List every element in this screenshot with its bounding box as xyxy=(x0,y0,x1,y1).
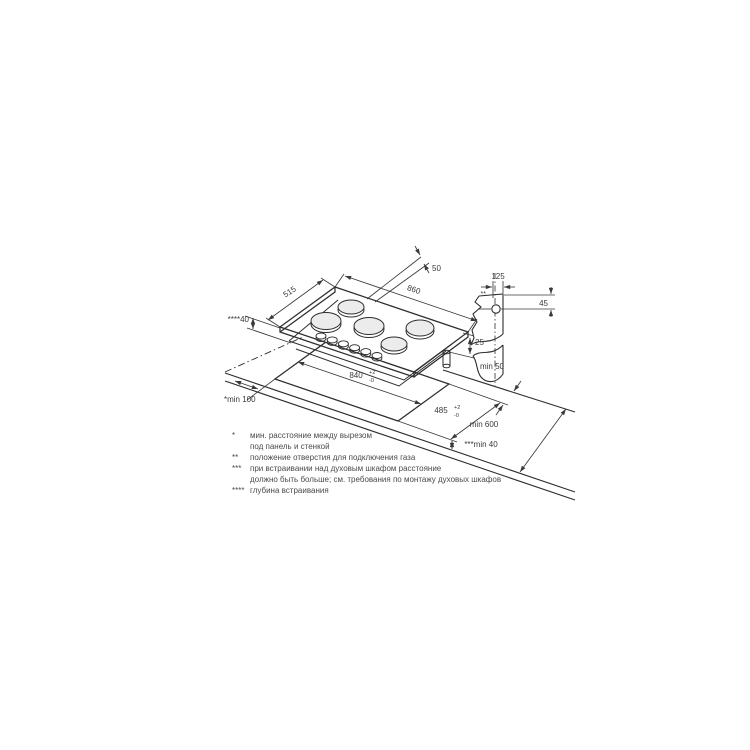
worktop-back-edge xyxy=(443,370,575,412)
installation-diagram: 50 860 515 ****40 25 125 ** 45 840 +2 -0… xyxy=(0,0,750,750)
label-front-clearance: ***min 40 xyxy=(464,440,498,449)
label-gas-offset: 50 xyxy=(432,264,441,273)
footnote-text: должно быть больше; см. требования по мо… xyxy=(250,475,501,484)
detail-panel-upper xyxy=(479,294,503,334)
dim-back-clearance xyxy=(496,381,521,415)
label-worktop-depth: min 600 xyxy=(470,420,499,429)
burner-left xyxy=(311,313,341,330)
label-hob-width: 860 xyxy=(406,283,422,296)
footnotes: * мин. расстояние между вырезом под пане… xyxy=(232,431,501,495)
footnote-marker: * xyxy=(232,431,235,440)
label-hole-x: 125 xyxy=(491,272,505,281)
footnote-marker: *** xyxy=(232,464,241,473)
burner-back xyxy=(338,300,364,314)
label-cutout-width-tol-minus: -0 xyxy=(369,378,374,384)
burner-right xyxy=(406,320,434,336)
diagram-svg: 50 860 515 ****40 25 125 ** 45 840 +2 -0… xyxy=(0,0,750,750)
burner-center xyxy=(354,318,384,335)
label-cutout-width: 840 xyxy=(349,371,363,380)
label-back-clearance: min 50 xyxy=(480,362,505,371)
label-hob-depth: 515 xyxy=(282,284,299,299)
dim-worktop-depth xyxy=(520,409,566,472)
dim-cutout-depth xyxy=(398,384,508,442)
footnote-text: мин. расстояние между вырезом xyxy=(250,431,372,440)
label-cutout-width-tol-plus: +2 xyxy=(369,370,375,376)
label-hole-marker: ** xyxy=(481,291,487,298)
footnote-marker: ** xyxy=(232,453,238,462)
label-side-clearance: *min 100 xyxy=(224,395,256,404)
label-hob-height: 25 xyxy=(475,338,484,347)
footnote-text: под панель и стенкой xyxy=(250,442,330,451)
dim-gas-offset xyxy=(367,246,429,302)
label-embed-depth: ****40 xyxy=(228,315,250,324)
footnote-text: положение отверстия для подключения газа xyxy=(250,453,416,462)
footnote-text: глубина встраивания xyxy=(250,486,329,495)
label-cutout-depth: 485 xyxy=(434,406,448,415)
label-hole-y: 45 xyxy=(539,299,548,308)
burner-front xyxy=(381,337,407,351)
label-cutout-depth-tol-minus: -0 xyxy=(454,413,459,419)
gas-hole xyxy=(492,305,500,313)
footnote-marker: **** xyxy=(232,486,244,495)
footnote-text: при встраивании над духовым шкафом расст… xyxy=(250,464,442,473)
label-cutout-depth-tol-plus: +2 xyxy=(454,405,460,411)
